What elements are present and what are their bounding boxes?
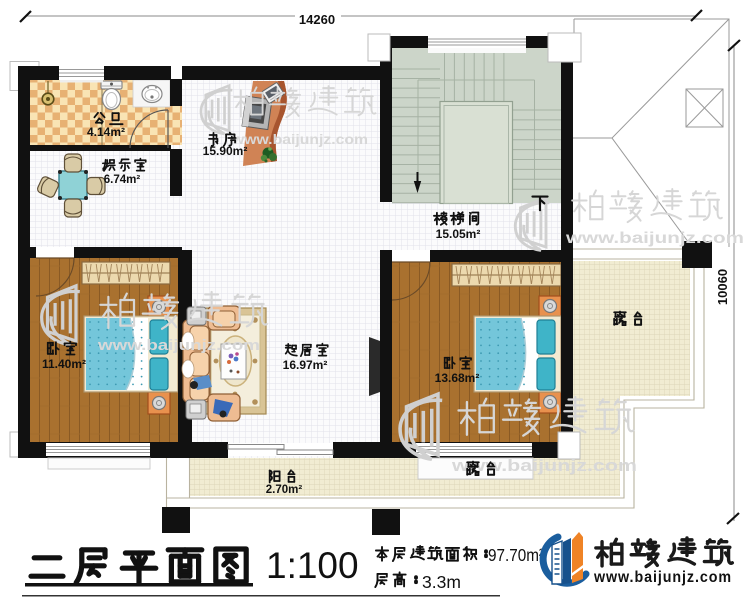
svg-text:16.97m²: 16.97m²	[283, 358, 328, 372]
svg-text:www.baijunjz.com: www.baijunjz.com	[231, 132, 368, 147]
svg-text:3.3m: 3.3m	[422, 572, 461, 592]
svg-text:www.baijunjz.com: www.baijunjz.com	[97, 337, 260, 354]
svg-text:97.70m²: 97.70m²	[488, 545, 544, 565]
svg-text:14260: 14260	[299, 12, 335, 27]
svg-text:www.baijunjz.com: www.baijunjz.com	[593, 569, 732, 586]
svg-text:13.68m²: 13.68m²	[435, 371, 480, 385]
svg-text:15.05m²: 15.05m²	[436, 227, 481, 241]
svg-text:2.70m²: 2.70m²	[266, 484, 303, 496]
svg-text:15.90m²: 15.90m²	[203, 144, 248, 158]
svg-text:4.14m²: 4.14m²	[87, 125, 125, 139]
svg-text:11.40m²: 11.40m²	[42, 357, 86, 371]
svg-text:www.baijunjz.com: www.baijunjz.com	[565, 230, 744, 247]
svg-text:1:100: 1:100	[266, 545, 359, 586]
svg-text:6.74m²: 6.74m²	[104, 174, 141, 186]
svg-text:10060: 10060	[715, 269, 730, 305]
